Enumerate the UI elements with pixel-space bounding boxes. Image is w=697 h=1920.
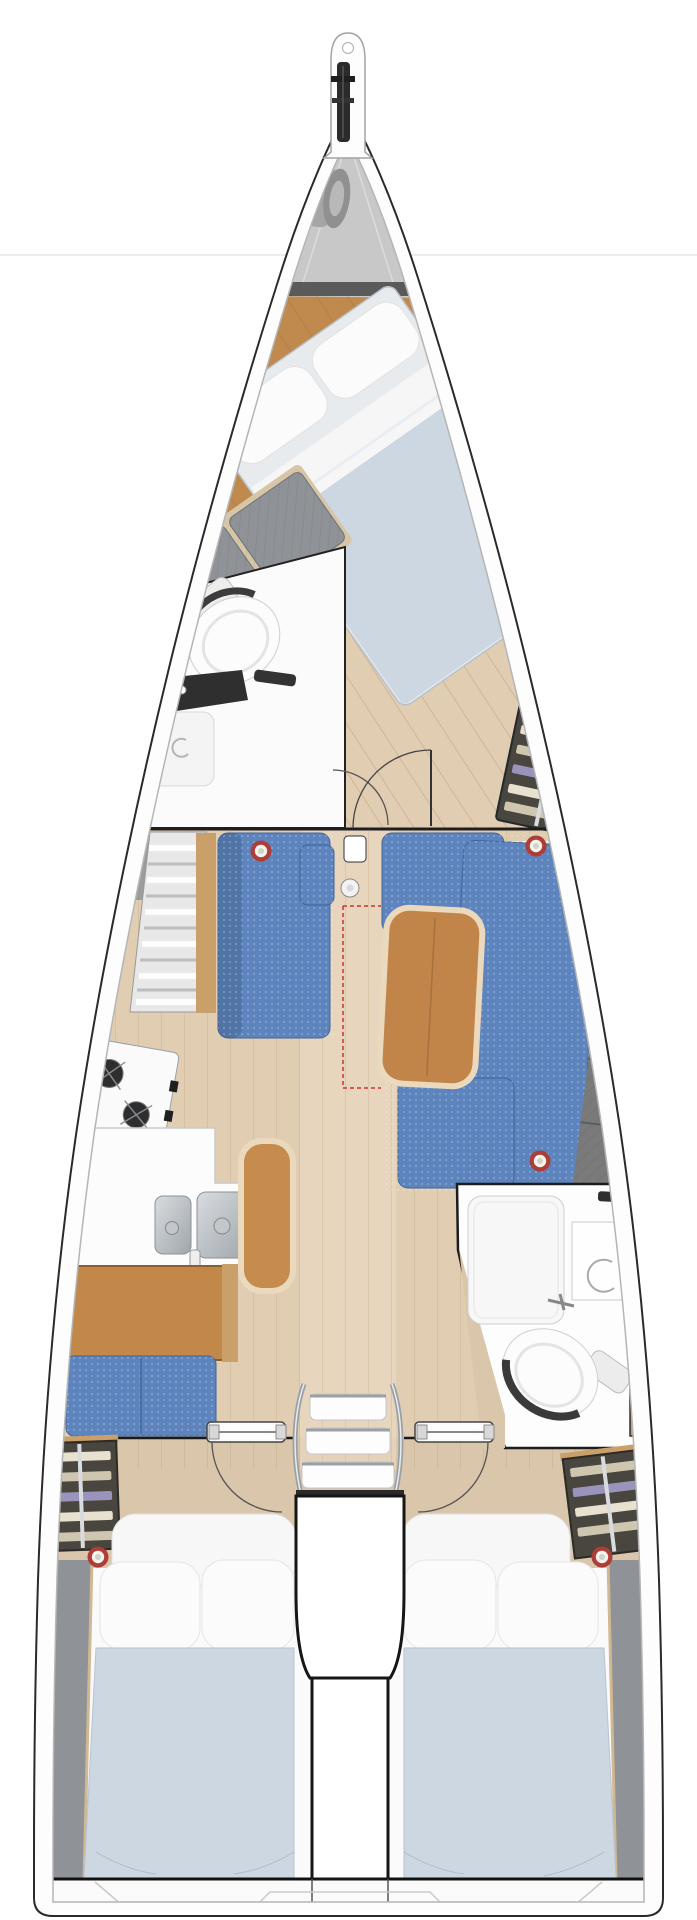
starboard-aft-mattress <box>404 1648 616 1878</box>
galley-bench <box>238 1138 296 1294</box>
port-pillow-left <box>100 1562 200 1650</box>
starboard-pillow-right <box>498 1562 598 1650</box>
aft-cabin-starboard <box>398 1514 660 1885</box>
fore-cabin-door-sill <box>344 836 366 862</box>
bow-roller-pin <box>343 43 354 54</box>
floor-plan-canvas <box>0 0 697 1920</box>
companionway-steps <box>302 1394 394 1488</box>
settee-port <box>218 833 336 1038</box>
aft-shower <box>468 1196 564 1324</box>
port-aft-mattress <box>84 1648 294 1878</box>
engine-compartment <box>296 1496 404 1916</box>
nav-station <box>64 1264 238 1436</box>
port-pillow-right <box>202 1560 294 1650</box>
red-ring-marker-saloon-starboard <box>526 836 547 857</box>
red-ring-marker-aft-port <box>88 1547 109 1568</box>
aft-cabin-port <box>40 1514 303 1885</box>
starboard-pillow-left <box>404 1560 496 1650</box>
saloon-table <box>375 903 486 1090</box>
chart-desk <box>64 1266 236 1360</box>
red-ring-marker-aft-starboard <box>592 1547 613 1568</box>
desk-side-panel <box>222 1264 238 1362</box>
boat-floor-plan <box>0 0 697 1920</box>
red-ring-marker-saloon-port <box>251 841 272 862</box>
port-wood-fiddle <box>196 833 216 1013</box>
bow-sprit <box>324 33 372 158</box>
red-ring-marker-settee-aft <box>530 1151 551 1172</box>
